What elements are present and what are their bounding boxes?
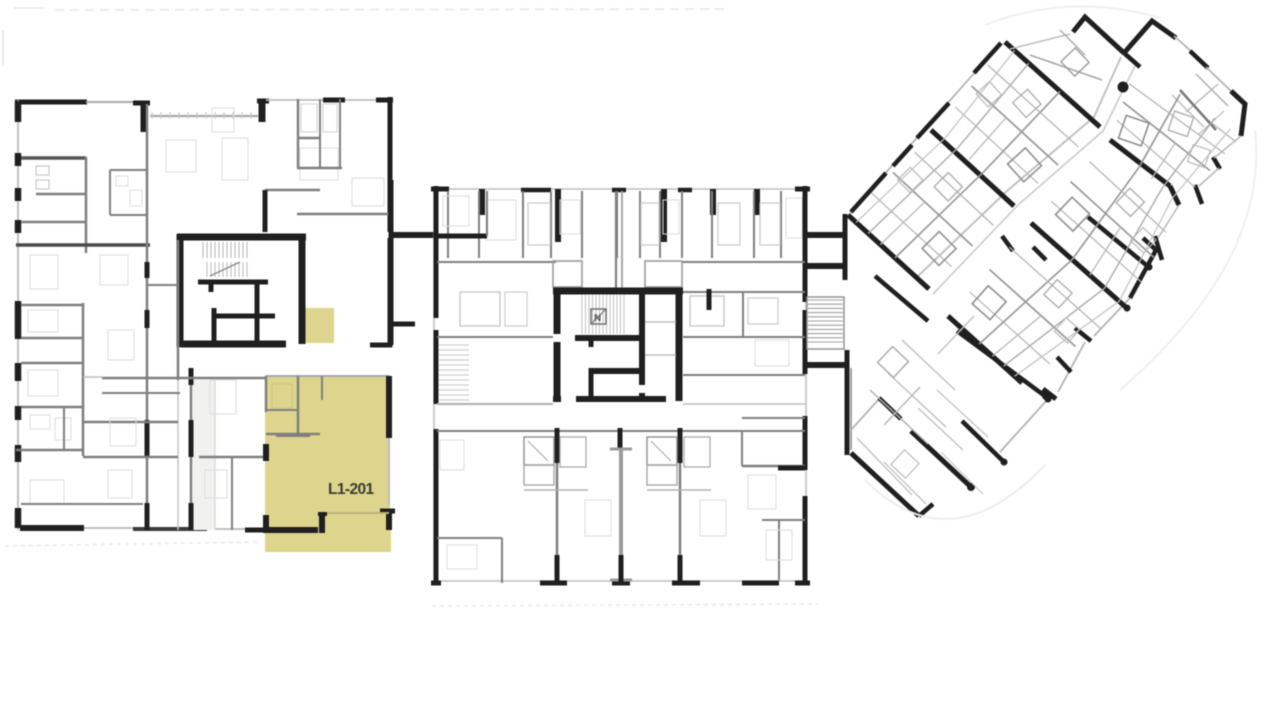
svg-text:N: N bbox=[594, 313, 601, 324]
svg-text:L1-201: L1-201 bbox=[328, 481, 374, 498]
